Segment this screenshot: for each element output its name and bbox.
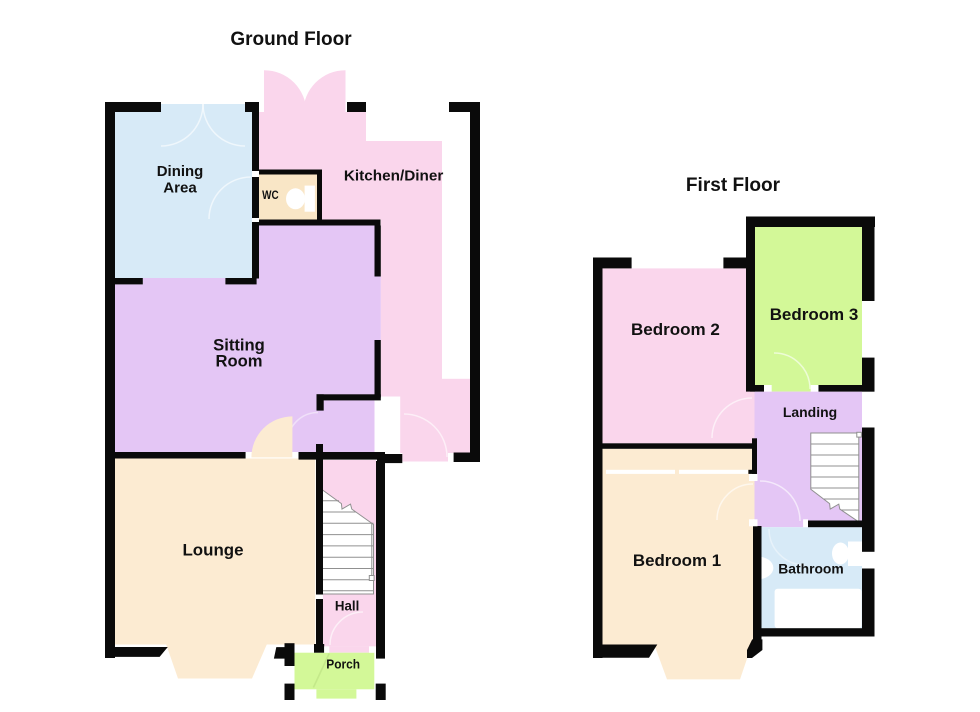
svg-text:Bedroom 3: Bedroom 3 xyxy=(770,305,859,324)
svg-text:WC: WC xyxy=(262,190,279,202)
svg-text:Room: Room xyxy=(216,352,263,370)
svg-text:Bedroom 2: Bedroom 2 xyxy=(631,320,720,339)
svg-text:Bathroom: Bathroom xyxy=(778,561,844,577)
svg-text:Bedroom 1: Bedroom 1 xyxy=(633,551,721,570)
svg-text:Porch: Porch xyxy=(326,658,360,672)
svg-text:Ground Floor: Ground Floor xyxy=(230,29,352,50)
svg-text:Lounge: Lounge xyxy=(182,540,243,559)
svg-text:Dining: Dining xyxy=(157,163,204,180)
svg-text:Kitchen/Diner: Kitchen/Diner xyxy=(344,168,443,185)
svg-text:Area: Area xyxy=(163,179,197,196)
svg-text:Hall: Hall xyxy=(335,598,359,614)
svg-text:Landing: Landing xyxy=(783,404,837,420)
svg-text:First Floor: First Floor xyxy=(686,175,781,196)
